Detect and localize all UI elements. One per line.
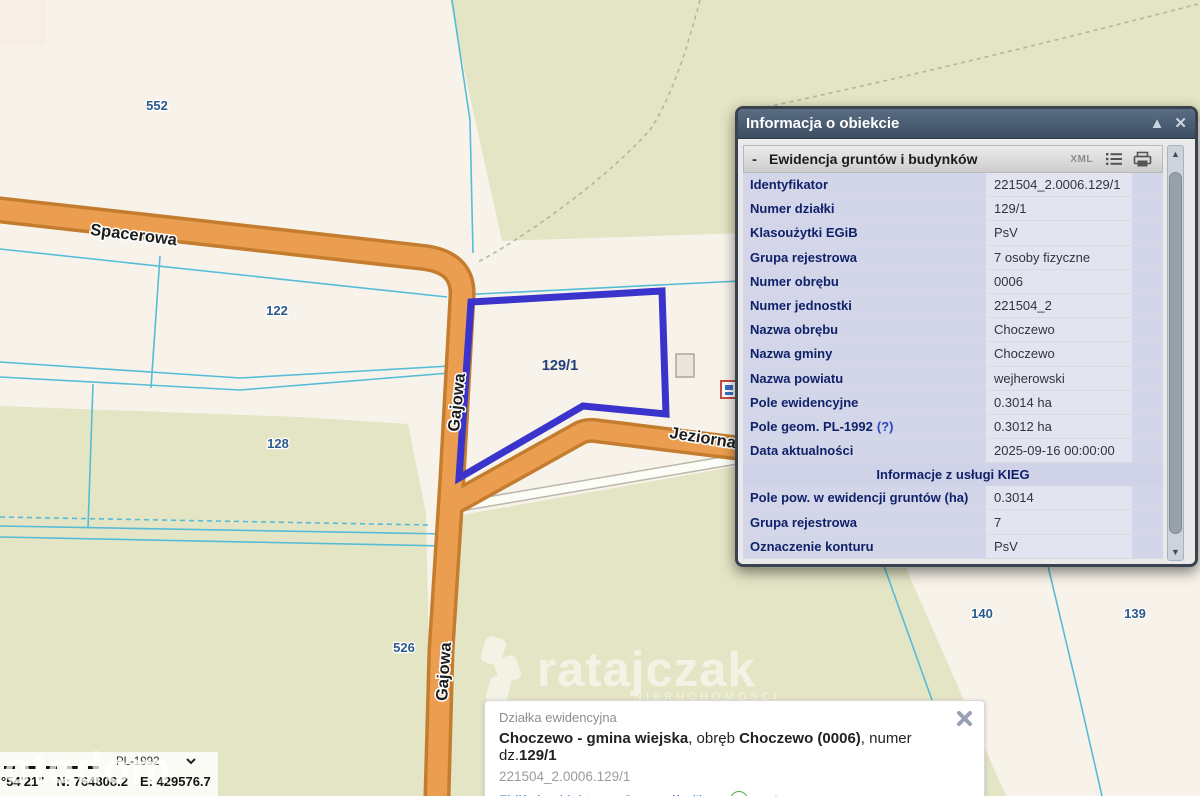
table-row: Numer jednostki221504_2	[743, 294, 1163, 318]
table-row: Pole geom. PL-1992(?)0.3012 ha	[743, 415, 1163, 439]
road-sign-icon	[721, 381, 736, 398]
chevron-down-icon[interactable]	[184, 754, 198, 768]
table-row: Nazwa powiatuwejherowski	[743, 367, 1163, 391]
table-row: Nazwa gminyChoczewo	[743, 342, 1163, 366]
xml-export-button[interactable]: XML	[1070, 154, 1093, 165]
parcel-label-122: 122	[266, 303, 288, 318]
feature-title: Choczewo - gmina wiejska, obręb Choczewo…	[499, 730, 970, 764]
building-footprint	[676, 354, 694, 377]
collapse-section-toggle[interactable]: -	[752, 151, 757, 168]
coord-latlon: °54'21"	[1, 774, 44, 789]
table-row: Pole pow. w ewidencji gruntów (ha)0.3014	[743, 486, 1163, 510]
scrollbar-thumb[interactable]	[1169, 172, 1182, 534]
coord-north: N: 764808.2	[56, 774, 128, 789]
table-row: Identyfikator221504_2.0006.129/1	[743, 173, 1163, 197]
coord-east: E: 429576.7	[140, 774, 211, 789]
zoom-to-object-link[interactable]: Zbliż do obiektu	[499, 792, 597, 796]
panel-title-bar: Informacja o obiekcie ▲ ✕	[738, 109, 1195, 139]
table-row: Pole ewidencyjne0.3014 ha	[743, 391, 1163, 415]
parcel-label-526: 526	[393, 640, 415, 655]
parcel-label-139: 139	[1124, 606, 1146, 621]
help-link[interactable]: (?)	[877, 419, 894, 434]
minimize-icon[interactable]: ▲	[1150, 116, 1165, 131]
feature-identifier: 221504_2.0006.129/1	[499, 769, 970, 784]
map-status-bar: PL-1992 °54'21" N: 764808.2 E: 429576.7	[0, 752, 218, 796]
ratajczak-watermark-text: ratajczak	[537, 643, 756, 697]
table-row: Grupa rejestrowa7 osoby fizyczne	[743, 246, 1163, 270]
table-row: Numer działki129/1	[743, 197, 1163, 221]
table-row: Grupa rejestrowa7	[743, 510, 1163, 534]
scroll-down-icon[interactable]: ▼	[1168, 547, 1183, 557]
crs-select[interactable]: PL-1992	[116, 756, 159, 768]
parcel-label-129-1: 129/1	[542, 358, 578, 374]
more-link[interactable]: Inne	[774, 792, 801, 796]
add-circle-icon[interactable]: +	[730, 791, 748, 796]
object-info-panel: Informacja o obiekcie ▲ ✕ - Ewidencja gr…	[735, 106, 1198, 567]
table-row: Data aktualności2025-09-16 00:00:00	[743, 439, 1163, 463]
section-header: - Ewidencja gruntów i budynków XML	[743, 145, 1163, 173]
scroll-up-icon[interactable]: ▲	[1168, 149, 1183, 159]
table-row: Oznaczenie konturuPsV	[743, 535, 1163, 559]
close-icon[interactable]: ✕	[1174, 116, 1187, 131]
table-subheader: Informacje z usługi KIEG	[743, 463, 1163, 486]
panel-scrollbar[interactable]: ▲ ▼	[1167, 145, 1184, 561]
feature-type-label: Działka ewidencyjna	[499, 710, 970, 725]
geoportal-app: Spacerowa Gajowa Gajowa Jeziorna 552 122…	[0, 0, 1200, 796]
table-row: Numer obrębu0006	[743, 270, 1163, 294]
scale-bar	[4, 766, 108, 769]
parcel-label-128: 128	[267, 436, 289, 451]
table-row: Nazwa obrębuChoczewo	[743, 318, 1163, 342]
panel-title: Informacja o obiekcie	[746, 115, 899, 132]
list-view-icon[interactable]	[1105, 151, 1123, 167]
feature-info-card: Działka ewidencyjna Choczewo - gmina wie…	[484, 700, 985, 796]
details-link[interactable]: Szczegóły (I)	[623, 792, 704, 796]
section-title: Ewidencja gruntów i budynków	[769, 151, 1070, 167]
table-row: Klasoużytki EGiBPsV	[743, 221, 1163, 245]
attributes-table: Identyfikator221504_2.0006.129/1 Numer d…	[743, 173, 1163, 559]
close-icon[interactable]	[955, 709, 974, 728]
map-parcel-fill	[0, 0, 46, 46]
parcel-label-140: 140	[971, 606, 993, 621]
print-icon[interactable]	[1133, 151, 1152, 168]
cursor-coordinates: °54'21" N: 764808.2 E: 429576.7	[1, 774, 217, 789]
parcel-label-552: 552	[146, 98, 168, 113]
